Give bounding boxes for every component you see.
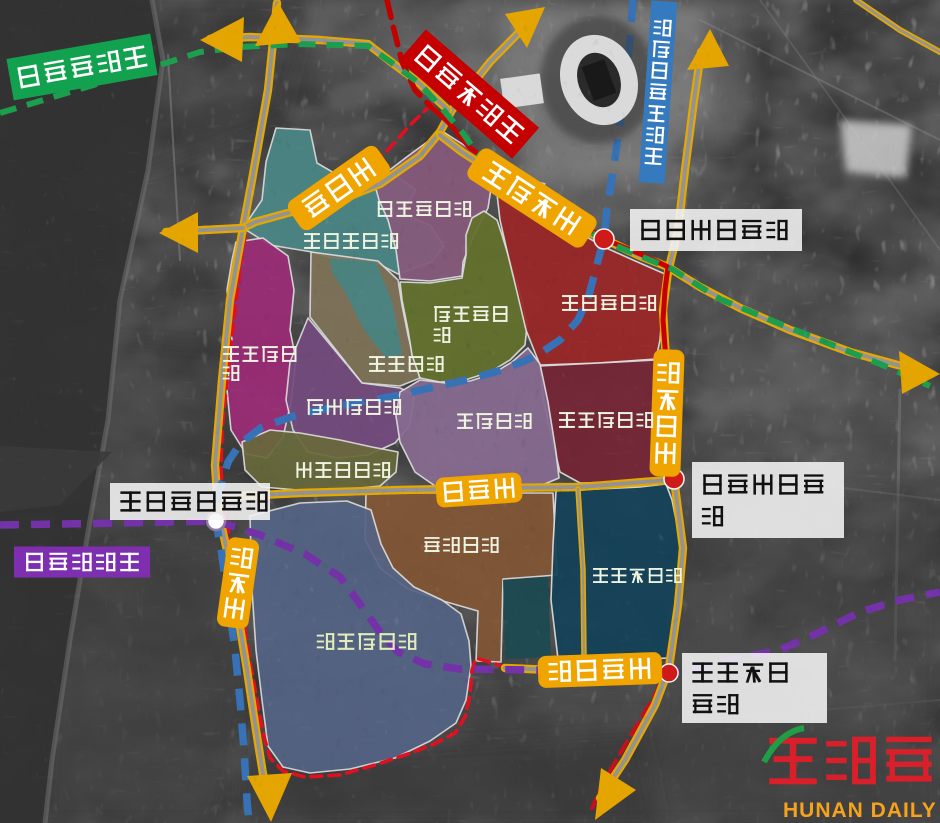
svg-text:HUNAN DAILY: HUNAN DAILY bbox=[783, 799, 937, 822]
